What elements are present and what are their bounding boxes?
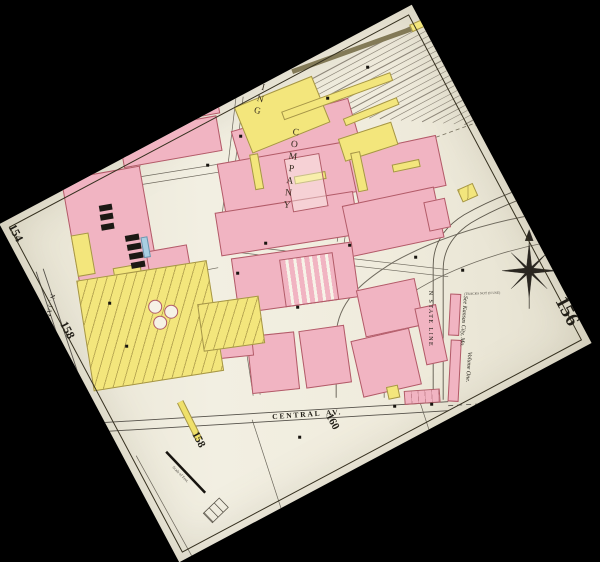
map-dot (414, 256, 417, 259)
storage-tank (153, 316, 167, 330)
map-dot (430, 403, 433, 406)
storage-tank (148, 300, 162, 314)
map-dot (264, 242, 267, 245)
track-line (380, 5, 592, 119)
map-dot (88, 433, 91, 436)
track-line (401, 5, 592, 121)
map-dot (125, 345, 128, 348)
legend-stamp (203, 498, 228, 523)
map-dot (393, 405, 396, 408)
map-dot (206, 164, 209, 167)
scanned-map-photo: { "sheet": { "numbers": { "left_top": "1… (0, 0, 600, 553)
map-content: ING COMPANY CENTRAL AV. N. JAMES N STATE… (0, 5, 592, 562)
map-dot (296, 306, 299, 309)
map-dot (108, 302, 111, 305)
map-sheet-paper: ING COMPANY CENTRAL AV. N. JAMES N STATE… (0, 5, 592, 562)
map-dot (236, 272, 239, 275)
map-dot (366, 66, 369, 69)
map-dot (348, 244, 351, 247)
yellow-building (386, 385, 400, 400)
pink-subdivided-row (404, 388, 441, 404)
pink-striped-buildings (279, 252, 339, 307)
track-line (422, 5, 591, 122)
map-dot (239, 135, 242, 138)
pink-building (298, 325, 352, 389)
map-dot (326, 97, 329, 100)
track-line (475, 5, 592, 126)
photo-stage: ING COMPANY CENTRAL AV. N. JAMES N STATE… (0, 0, 600, 553)
track-line (454, 5, 592, 124)
track-line (369, 5, 591, 118)
compass-rose-icon (502, 230, 556, 309)
track-line (443, 5, 591, 123)
track-line (348, 5, 591, 117)
track-line (464, 5, 591, 125)
scale-bar (166, 452, 205, 493)
map-dot (461, 269, 464, 272)
n-state-line-label: N STATE LINE (427, 291, 433, 348)
track-line (327, 5, 592, 116)
map-dot (298, 436, 301, 439)
storage-tank (164, 305, 178, 319)
yellow-striped-yard (197, 296, 265, 352)
track-line (338, 5, 592, 116)
track-line (486, 5, 592, 126)
track-line (433, 5, 592, 123)
track-line (316, 5, 591, 115)
